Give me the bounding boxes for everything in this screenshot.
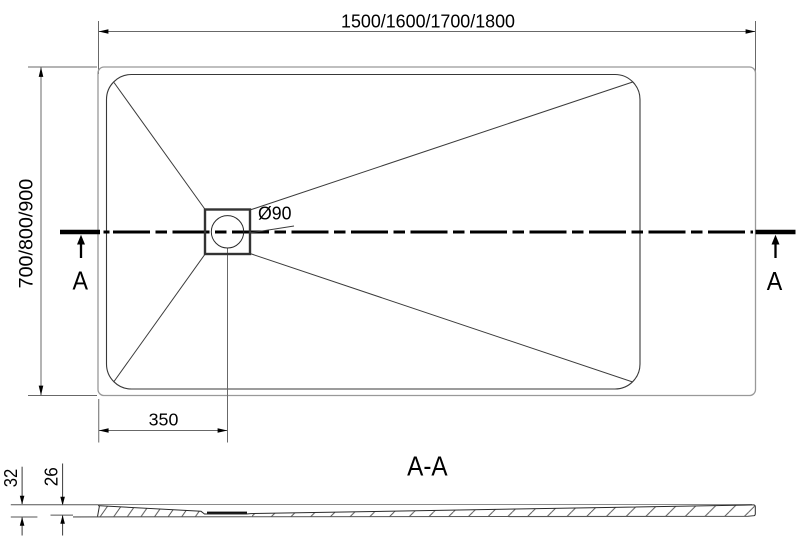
svg-text:Ø90: Ø90 bbox=[258, 204, 292, 224]
svg-text:32: 32 bbox=[1, 469, 22, 487]
svg-text:350: 350 bbox=[149, 410, 179, 430]
svg-text:700/800/900: 700/800/900 bbox=[15, 179, 37, 289]
svg-text:1500/1600/1700/1800: 1500/1600/1700/1800 bbox=[341, 11, 515, 32]
svg-text:26: 26 bbox=[41, 467, 62, 486]
svg-text:A: A bbox=[767, 266, 783, 296]
svg-text:A: A bbox=[72, 266, 88, 296]
svg-text:A-A: A-A bbox=[407, 450, 448, 481]
